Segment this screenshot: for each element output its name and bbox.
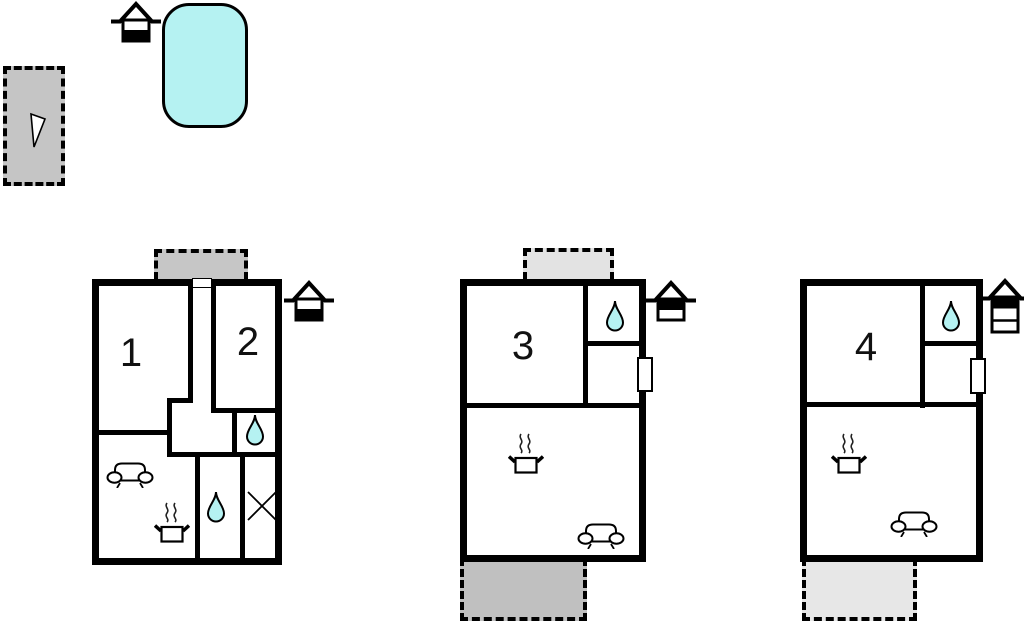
wall — [240, 452, 245, 565]
wall — [195, 452, 200, 565]
water-drop-icon — [206, 491, 226, 523]
terrace-top-unit-1-2 — [154, 249, 248, 280]
sofa-icon — [106, 458, 154, 488]
floorplan-unit-1-2: 1 2 — [92, 279, 282, 565]
stove-icon — [831, 431, 867, 475]
water-drop-icon — [605, 300, 625, 332]
floorplan-unit-4: 4 — [800, 279, 983, 562]
door-opening — [637, 357, 653, 392]
sofa-icon — [890, 507, 938, 537]
wall — [800, 555, 983, 562]
wall — [167, 398, 172, 456]
door-opening — [192, 278, 212, 288]
floor-plan-canvas: 1 2 — [0, 0, 1024, 622]
room-label-4: 4 — [855, 327, 877, 367]
house-upper-floor-icon — [645, 279, 697, 323]
wall — [275, 279, 282, 565]
sofa-icon — [577, 519, 625, 549]
terrace-bottom-unit-4 — [802, 558, 917, 621]
door-opening — [970, 358, 986, 394]
wall — [460, 279, 467, 562]
wall — [92, 279, 282, 286]
terrace-bottom-unit-3 — [460, 558, 587, 621]
wall — [232, 408, 237, 457]
floorplan-unit-3: 3 — [460, 279, 646, 562]
wall — [920, 341, 983, 346]
water-drop-icon — [245, 414, 265, 446]
stove-icon — [154, 500, 190, 544]
wall — [800, 279, 983, 286]
house-ground-floor-icon — [283, 279, 335, 323]
wall — [92, 558, 282, 565]
room-label-3: 3 — [512, 326, 534, 366]
house-ground-floor-icon — [110, 0, 162, 44]
wall — [583, 341, 646, 346]
wall — [211, 279, 216, 408]
terrace-top-unit-3 — [523, 248, 614, 280]
wall — [211, 408, 275, 413]
water-drop-icon — [941, 300, 961, 332]
wall — [92, 430, 167, 435]
wall — [167, 452, 275, 457]
house-top-floor-three-storey-icon — [979, 277, 1024, 335]
room-label-1: 1 — [120, 333, 142, 373]
wall — [188, 279, 193, 403]
wall — [460, 279, 646, 286]
wall — [460, 555, 646, 562]
x-mark-icon — [246, 490, 278, 522]
direction-arrow-icon — [27, 112, 47, 149]
swimming-pool — [162, 3, 248, 128]
wall — [800, 402, 983, 407]
room-label-2: 2 — [237, 322, 259, 362]
wall — [800, 279, 807, 562]
stove-icon — [508, 431, 544, 475]
parking-area — [3, 66, 65, 186]
wall — [460, 403, 646, 408]
wall — [92, 279, 99, 565]
